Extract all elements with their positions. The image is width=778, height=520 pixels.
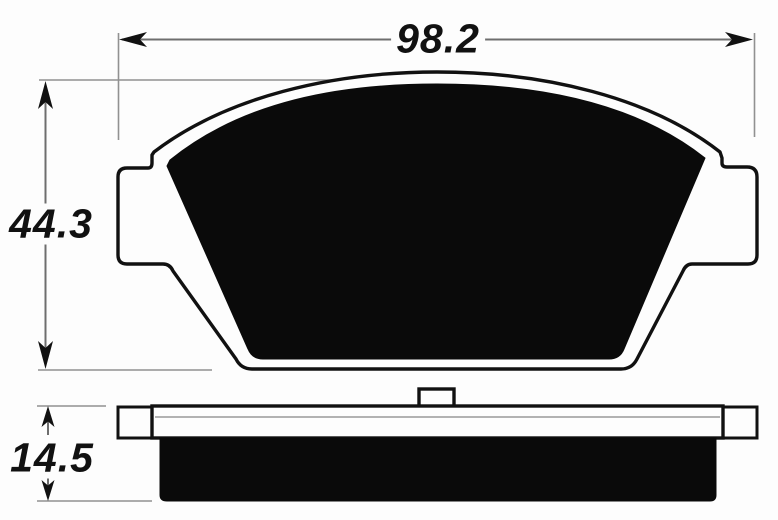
side-view-right-tab — [723, 407, 757, 438]
side-view-backing-plate — [152, 406, 723, 438]
side-view-friction-block — [160, 438, 716, 501]
front-view-friction-material — [167, 84, 705, 359]
diagram-canvas: 98.2 44.3 14.5 — [0, 0, 778, 520]
width-dimension-label: 98.2 — [391, 19, 485, 60]
height-dimension-label: 44.3 — [4, 204, 98, 245]
side-view-left-tab — [118, 407, 152, 438]
technical-drawing — [0, 0, 778, 520]
thickness-dimension-label: 14.5 — [5, 438, 99, 479]
